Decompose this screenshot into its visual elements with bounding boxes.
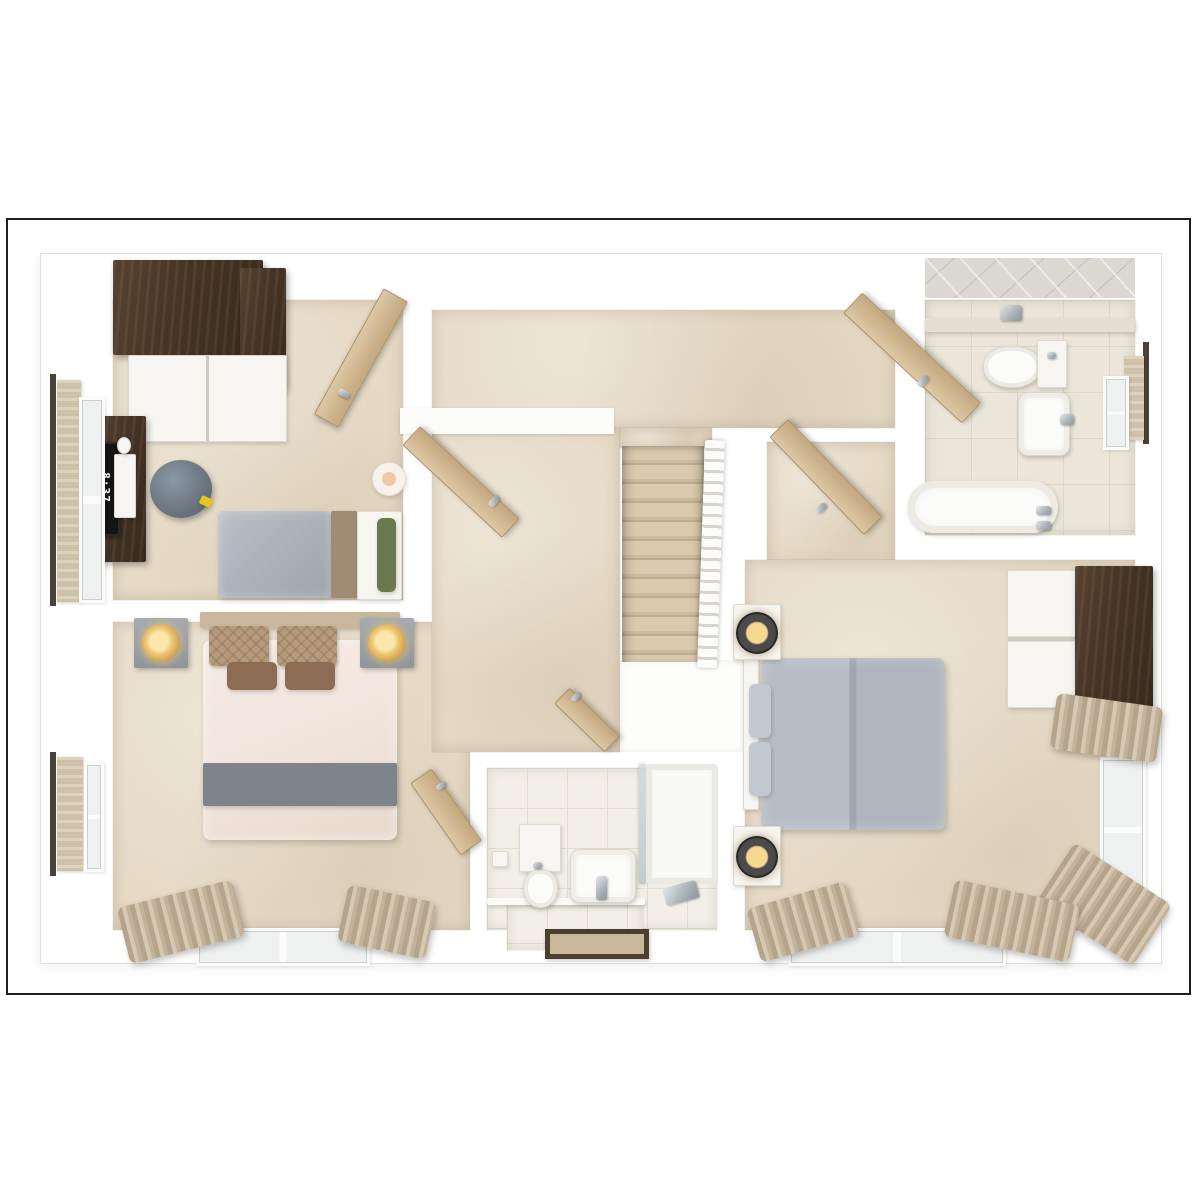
- bed2-cushion-left: [227, 662, 277, 690]
- bed2-pillow-left: [209, 626, 269, 666]
- tp-holder2: [492, 851, 508, 867]
- stool3: [150, 460, 212, 518]
- toilet1-cistern: [1037, 340, 1067, 388]
- sink2-tap: [596, 876, 607, 900]
- floorplan-canvas: 8:37: [0, 0, 1200, 1201]
- bed1-pillow-top: [749, 684, 771, 738]
- floorplan-render: 8:37: [0, 0, 1200, 1201]
- bed2-cushion-right: [285, 662, 335, 690]
- bed1-duvet: [761, 658, 945, 830]
- shower-tray: [646, 764, 718, 884]
- blind2-panel: [57, 757, 83, 871]
- blind2-frame: [84, 762, 104, 872]
- tp-holder1: [1000, 305, 1022, 321]
- tub-tap-b: [1036, 521, 1051, 530]
- bathroom-wall-ledge: [925, 318, 1135, 332]
- bathroom-ceiling-tiles: [925, 258, 1135, 298]
- lamp1-top: [736, 612, 778, 654]
- keyboard3: [114, 454, 136, 518]
- stairwell-void: [620, 660, 745, 752]
- window3-rod: [50, 374, 56, 606]
- tub-tap-a: [1036, 506, 1051, 515]
- toilet1-bowl: [983, 346, 1041, 388]
- window-bath-frame: [1103, 376, 1129, 450]
- lamp2-left: [142, 624, 180, 662]
- sink1-tap: [1060, 414, 1074, 425]
- wardrobe1-body: [1075, 566, 1153, 708]
- window3-blind: [57, 380, 81, 602]
- wall-alcove: [400, 408, 614, 434]
- wardrobe3-front: [128, 355, 287, 442]
- shower-glass: [639, 764, 646, 884]
- bed2-runner: [203, 763, 397, 806]
- bed3-blanket-band: [331, 511, 357, 598]
- bath-mat: [545, 929, 649, 959]
- bed3-pillow-green: [377, 518, 396, 592]
- toilet2-flush: [533, 862, 542, 869]
- staircase: [622, 446, 704, 662]
- lamp2-right: [368, 624, 406, 662]
- mouse3: [117, 437, 131, 454]
- bed2-pillow-right: [277, 626, 337, 666]
- toilet2-bowl: [523, 869, 558, 908]
- bedroom1-entry-floor: [767, 442, 895, 564]
- blind2-rod: [50, 752, 56, 876]
- lamp-bedroom3: [372, 462, 406, 496]
- bed1-pillow-bottom: [749, 742, 771, 796]
- toilet1-flush: [1047, 352, 1056, 359]
- stairs-top-strip: [620, 428, 712, 448]
- bed3-duvet: [218, 511, 331, 598]
- window3-frame: [79, 397, 105, 603]
- lamp1-bottom: [736, 836, 778, 878]
- wardrobe1-doors: [1007, 570, 1077, 708]
